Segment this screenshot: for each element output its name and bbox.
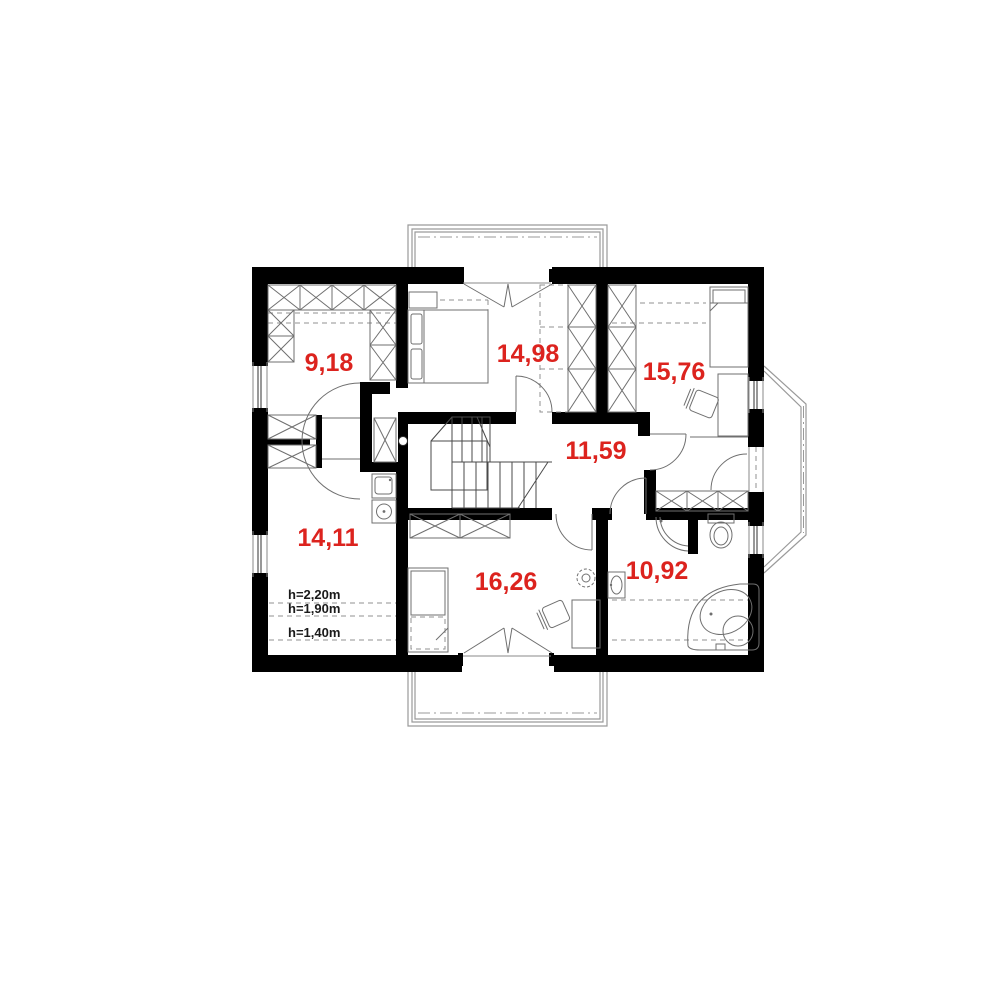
door-bathroom xyxy=(610,478,646,514)
washing-machine xyxy=(372,500,396,523)
door-room-1626 xyxy=(556,514,592,550)
wardrobe-1576 xyxy=(608,285,636,412)
area-label-1626: 16,26 xyxy=(475,568,538,596)
room-area-labels: 9,18 14,98 15,76 11,59 14,11 16,26 10,92 xyxy=(297,340,705,596)
area-label-1498: 14,98 xyxy=(497,340,560,368)
desk-1626 xyxy=(572,600,600,648)
area-label-1411: 14,11 xyxy=(297,524,358,552)
height-annotations: h=2,20m h=1,90m h=1,40m xyxy=(288,587,340,640)
balcony-top xyxy=(408,225,607,268)
door-attic-storage xyxy=(711,454,747,490)
balcony-bottom xyxy=(408,672,607,726)
door-niche-double xyxy=(302,383,360,499)
single-bed-1576 xyxy=(710,287,748,367)
wardrobe-left-918 xyxy=(268,310,294,362)
area-label-1576: 15,76 xyxy=(643,358,706,386)
chair-1576 xyxy=(683,387,719,419)
wardrobe-right-918 xyxy=(370,310,396,380)
single-bed-1626 xyxy=(408,568,448,652)
balcony-door-top xyxy=(464,284,552,307)
plant xyxy=(577,569,595,587)
area-label-918: 9,18 xyxy=(305,349,354,377)
washbasin-small xyxy=(372,474,396,498)
wardrobe-top-918 xyxy=(268,285,396,310)
balcony-door-bottom xyxy=(464,628,552,653)
window-right-upper xyxy=(748,377,764,413)
window-right-lower xyxy=(748,522,764,558)
area-label-1092: 10,92 xyxy=(626,557,689,585)
window-left-upper xyxy=(252,362,268,412)
floor-plan-svg: 9,18 14,98 15,76 11,59 14,11 16,26 10,92… xyxy=(0,0,1000,1000)
area-label-1159: 11,59 xyxy=(565,437,626,465)
bay-window-outline xyxy=(764,366,806,573)
height-label-190: h=1,90m xyxy=(288,601,340,616)
attic-opening-right xyxy=(749,447,763,492)
floor-plan-canvas: 9,18 14,98 15,76 11,59 14,11 16,26 10,92… xyxy=(0,0,1000,1000)
stairs xyxy=(431,417,552,508)
double-bed xyxy=(408,292,488,383)
height-label-140: h=1,40m xyxy=(288,625,340,640)
chair-1626 xyxy=(536,599,571,630)
door-room-1498 xyxy=(516,376,552,412)
washbasin-bath xyxy=(608,572,625,598)
door-room-1576 xyxy=(650,434,686,470)
window-left-lower xyxy=(252,531,268,577)
shower xyxy=(656,517,688,551)
height-label-220: h=2,20m xyxy=(288,587,340,602)
